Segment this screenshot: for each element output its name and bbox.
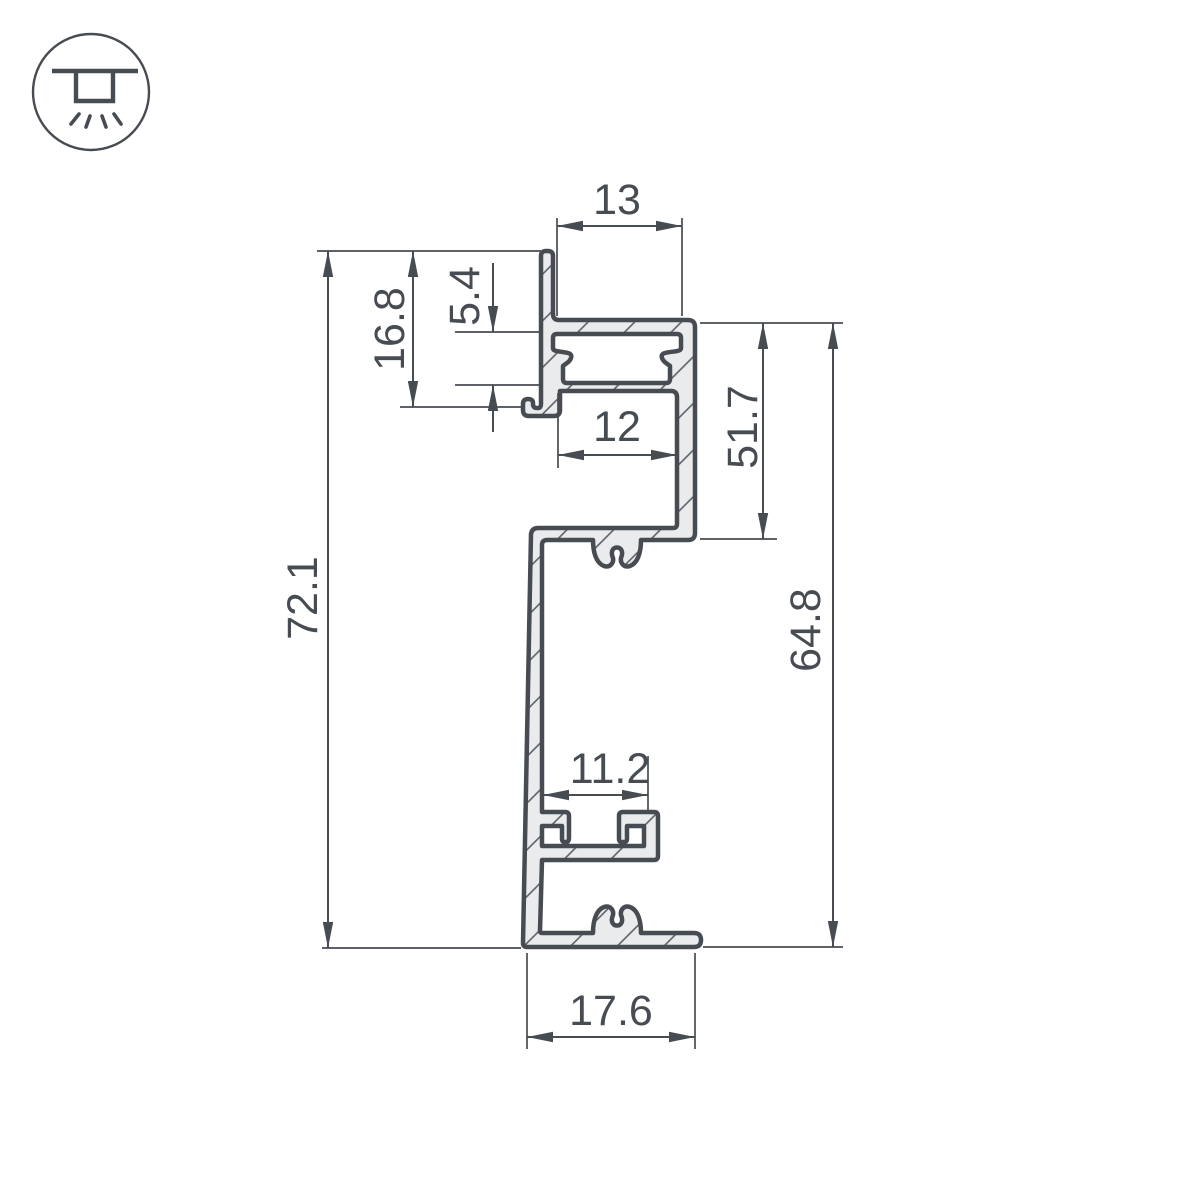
dimension-right-inner-height: 51.7	[700, 323, 843, 539]
dimension-window-width: 12	[558, 393, 677, 468]
recessed-ceiling-light-icon	[33, 34, 149, 150]
dim-label-screw-channel-width: 11.2	[570, 745, 651, 793]
dim-label-window-width: 12	[593, 403, 641, 451]
profile-drawing: 13 16.8 5.4 72.1 12 51.7 64.8	[0, 0, 1200, 1200]
dimension-top-width: 13	[557, 176, 682, 316]
profile-hatching	[523, 251, 701, 947]
dimension-screw-channel-width: 11.2	[543, 745, 650, 810]
dim-label-total-height: 72.1	[279, 556, 327, 640]
dim-label-right-inner-height: 51.7	[719, 385, 767, 469]
dim-label-top-width: 13	[593, 176, 641, 224]
dim-label-slot-depth: 5.4	[441, 266, 489, 326]
profile-cross-section	[523, 251, 701, 947]
dimension-base-width: 17.6	[527, 953, 695, 1049]
dimension-upper-height: 16.8	[317, 251, 541, 407]
dim-label-body-height: 64.8	[782, 588, 830, 672]
dim-label-base-width: 17.6	[569, 987, 653, 1035]
icon-lamp-box	[76, 70, 113, 101]
icon-light-rays	[71, 114, 121, 127]
icon-circle	[33, 34, 149, 150]
dim-label-upper-height: 16.8	[366, 287, 414, 371]
drawing-canvas: 13 16.8 5.4 72.1 12 51.7 64.8	[0, 0, 1200, 1200]
